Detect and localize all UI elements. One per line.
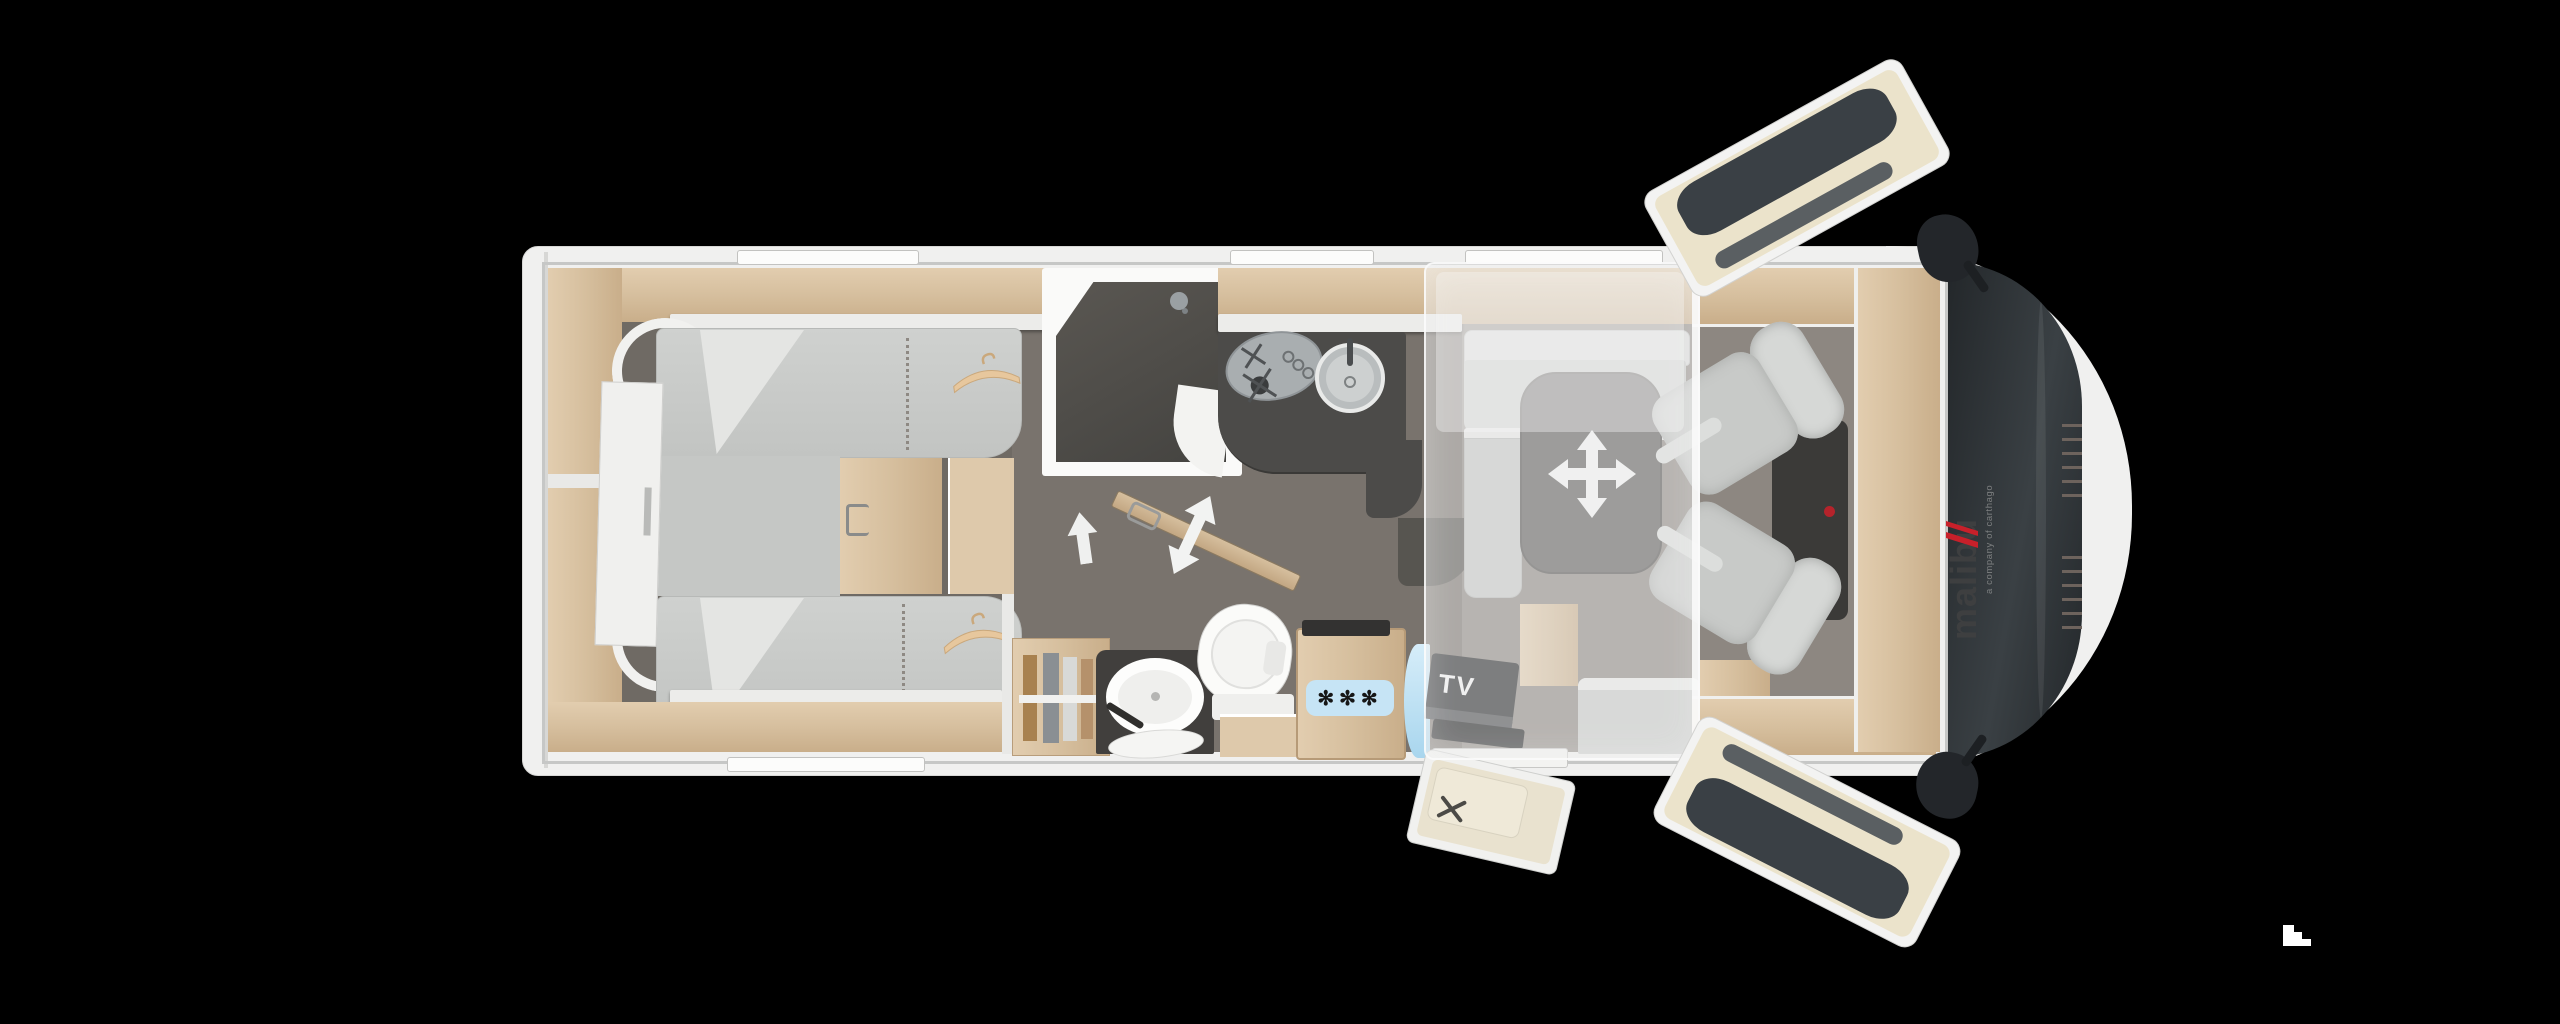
wardrobe-rail [1019, 695, 1103, 703]
drop-down-bed-fabric [1436, 272, 1684, 432]
brand-logo: malibu a company of carthago [1946, 420, 1998, 640]
drop-down-bed-edge [1692, 264, 1700, 758]
motorhome-floorplan-canvas: ✻✻✻ TV [0, 0, 2560, 1024]
drop-down-bed-overlay [1424, 262, 1700, 760]
toilet-lid-notch [1262, 640, 1287, 676]
dashboard-front [1854, 268, 1940, 752]
kitchen-sink [1314, 334, 1386, 414]
shower-head-icon [1170, 292, 1188, 310]
open-cabinet-door [595, 381, 664, 647]
washbasin-drain [1151, 692, 1160, 701]
bed-infill-cushion [640, 456, 840, 596]
brand-accent-mark [1944, 516, 1980, 556]
bed-divider-dotted-top [906, 338, 909, 450]
hood-grille-lower [2062, 556, 2084, 656]
washbasin [1106, 658, 1204, 736]
freezer-badge: ✻✻✻ [1306, 680, 1394, 716]
freezer-symbol: ✻✻✻ [1317, 686, 1382, 711]
window-rear-top [737, 250, 919, 265]
door-handle [643, 487, 651, 535]
steps-icon[interactable] [2282, 920, 2312, 948]
kitchen-worktop-arm [1366, 440, 1422, 518]
window-kitchen [1230, 250, 1374, 265]
windshield-reflection [2036, 302, 2046, 718]
steering-logo-dot [1824, 506, 1835, 517]
hood-grille-upper [2062, 424, 2084, 524]
fridge: ✻✻✻ [1296, 628, 1406, 760]
toilet-step [1220, 714, 1296, 757]
shower-cubicle [1042, 268, 1242, 476]
between-bed-cabinet [840, 458, 942, 594]
cabinet-handle [846, 504, 869, 536]
bedroom-step [948, 458, 1014, 594]
brand-tagline: a company of carthago [1984, 420, 1995, 594]
fridge-vent [1302, 620, 1390, 636]
window-rear-bottom [727, 757, 925, 772]
